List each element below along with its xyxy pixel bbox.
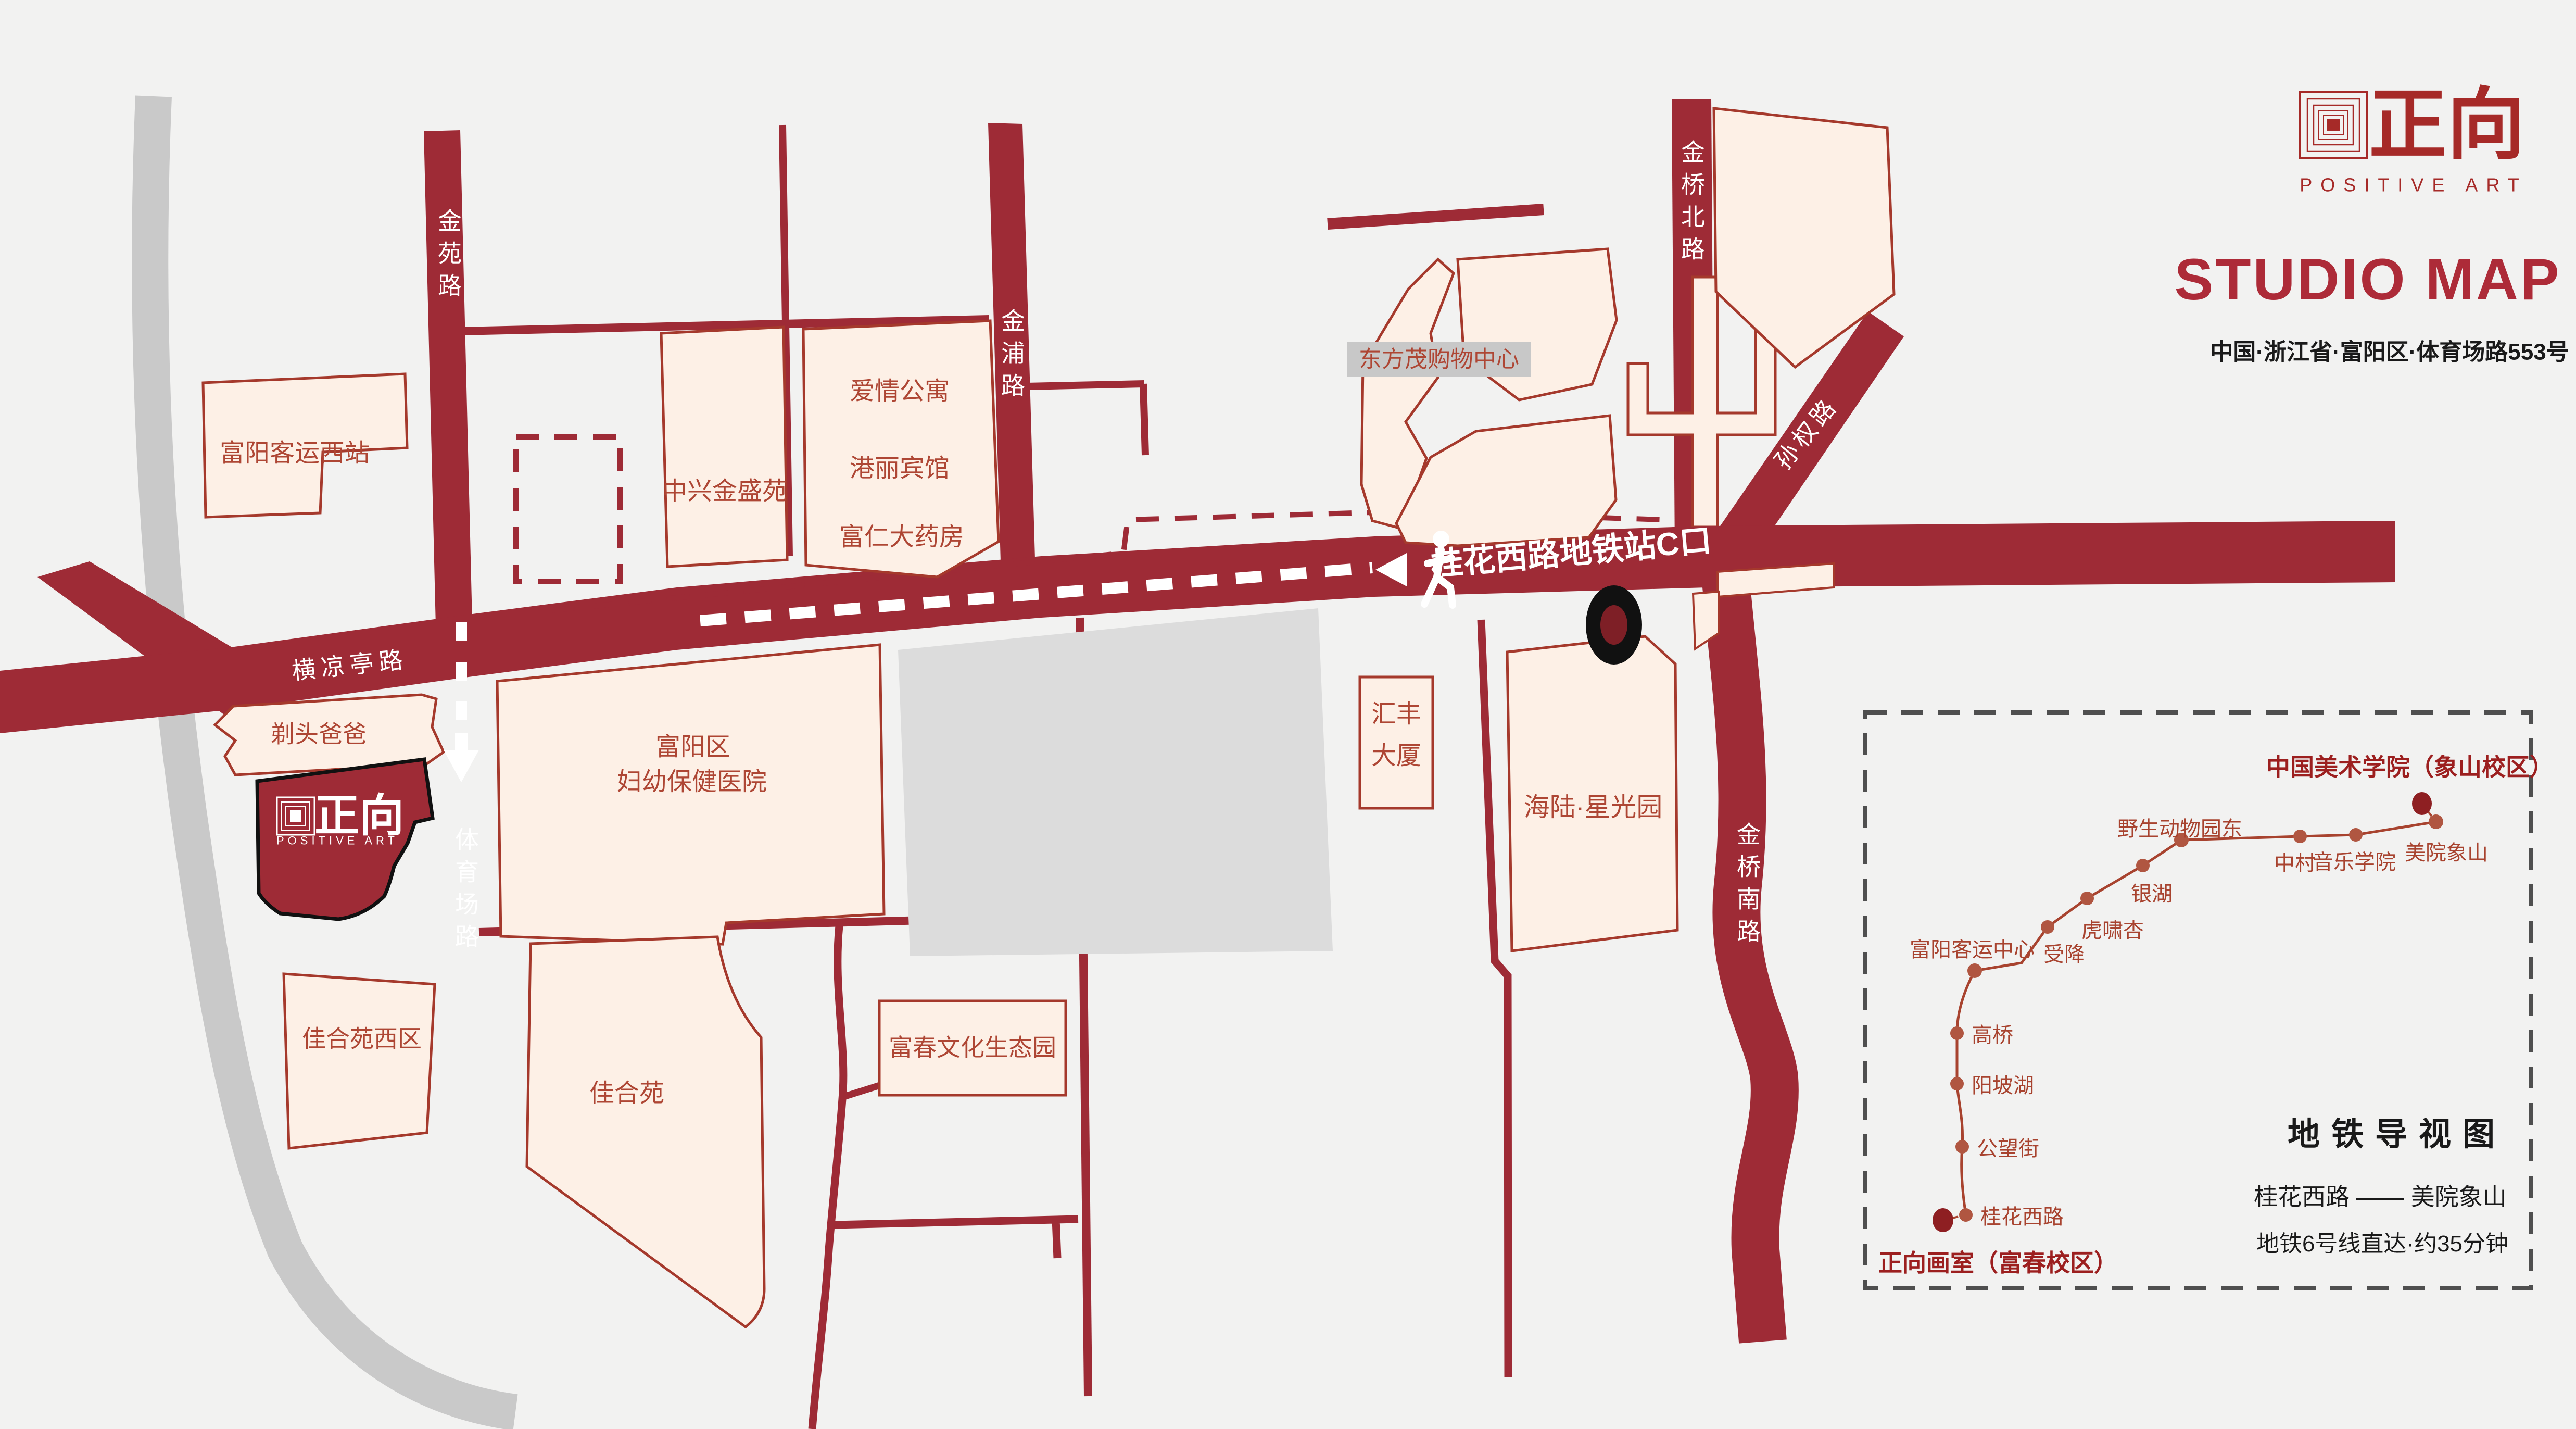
label-dongfangmao: 东方茂购物中心 <box>1359 345 1519 374</box>
studio-logo-en: POSITIVE ART <box>276 833 398 848</box>
inset-title: 地铁导视图 <box>2288 1108 2506 1155</box>
label-hailu-xingguang: 海陆·星光园 <box>1524 791 1663 824</box>
studio-map-poster: 正向 POSITIVE ART STUDIO MAP 中国·浙江省·富阳区·体育… <box>0 0 2576 1429</box>
studio-address: 中国·浙江省·富阳区·体育场路553号 <box>2210 338 2569 367</box>
station-yinyue-xueyuan: 音乐学院 <box>2313 845 2396 875</box>
road-label-jinpu: 金浦路 <box>994 308 1029 405</box>
road-jinqiao-south <box>1724 562 1775 1342</box>
label-fuyang-west-bus-station: 富阳客运西站 <box>220 438 370 469</box>
station-yinhu: 银湖 <box>2131 877 2173 907</box>
station-yesheng-dongwuyuan-dong: 野生动物园东 <box>2117 812 2242 842</box>
label-huifeng-1: 汇丰 <box>1371 699 1421 730</box>
label-jiaheyuan: 佳合苑 <box>589 1078 664 1109</box>
station-shoujiang: 受降 <box>2043 937 2085 968</box>
map-canvas <box>0 0 2576 1429</box>
station-gaoqiao: 高桥 <box>1972 1018 2013 1048</box>
building-dongfangmao-c <box>1396 416 1616 546</box>
station-yangpohu: 阳坡湖 <box>1972 1069 2034 1099</box>
road-label-jinqiao-south: 金桥南路 <box>1730 822 1764 951</box>
road-label-tiyuchang: 体育场路 <box>448 827 483 956</box>
inset-note: 地铁6号线直达·约35分钟 <box>2256 1225 2508 1258</box>
label-jiaheyuan-west: 佳合苑西区 <box>302 1024 422 1054</box>
brand-logo-en: POSITIVE ART <box>2300 173 2527 197</box>
building-zhongxing-jinsheng-yuan <box>661 327 787 567</box>
label-huifeng-2: 大厦 <box>1371 741 1421 772</box>
road-label-jinyuan: 金苑路 <box>431 208 465 305</box>
inset-end-label: 中国美术学院（象山校区） <box>2266 748 2554 783</box>
label-zhongxing-jinsheng-yuan: 中兴金盛苑 <box>662 476 787 507</box>
label-aiqing-1: 爱情公寓 <box>850 376 950 407</box>
inset-route: 桂花西路 —— 美院象山 <box>2254 1178 2507 1212</box>
brand-logo-icon <box>2300 92 2367 158</box>
station-huxiaoxing: 虎啸杏 <box>2081 913 2144 944</box>
label-hospital-2: 妇幼保健医院 <box>617 767 767 798</box>
gray-lot <box>898 608 1333 956</box>
brand-logo-zh: 正向 <box>2369 76 2525 174</box>
building-jiaheyuan <box>527 937 764 1327</box>
station-fuyang-keyun-zhongxin: 富阳客运中心 <box>1910 933 2035 963</box>
inset-start-dot <box>1933 1208 1953 1232</box>
label-fuchun-park: 富春文化生态园 <box>889 1033 1056 1063</box>
station-gongwangjie: 公望街 <box>1977 1132 2039 1162</box>
station-guihuaxilu: 桂花西路 <box>1980 1200 2064 1230</box>
label-hospital-1: 富阳区 <box>655 732 730 763</box>
road-label-jinqiao-north: 金桥北路 <box>1674 140 1709 269</box>
station-meiyuan-xiangshan: 美院象山 <box>2405 836 2488 866</box>
page-title: STUDIO MAP <box>2174 243 2561 316</box>
label-aiqing-3: 富仁大药房 <box>839 522 964 553</box>
metro-entrance-marker <box>1586 585 1642 665</box>
route-arrow-down-icon <box>444 733 479 782</box>
station-zhongcun: 中村 <box>2274 846 2316 876</box>
inset-end-dot <box>2412 792 2432 815</box>
label-aiqing-2: 港丽宾馆 <box>850 453 950 484</box>
inset-start-label: 正向画室（富春校区） <box>1878 1244 2118 1278</box>
building-jiaheyuan-west <box>284 974 435 1148</box>
building-dongfangmao-b <box>1458 249 1617 400</box>
label-titou-baba: 剃头爸爸 <box>271 719 367 749</box>
